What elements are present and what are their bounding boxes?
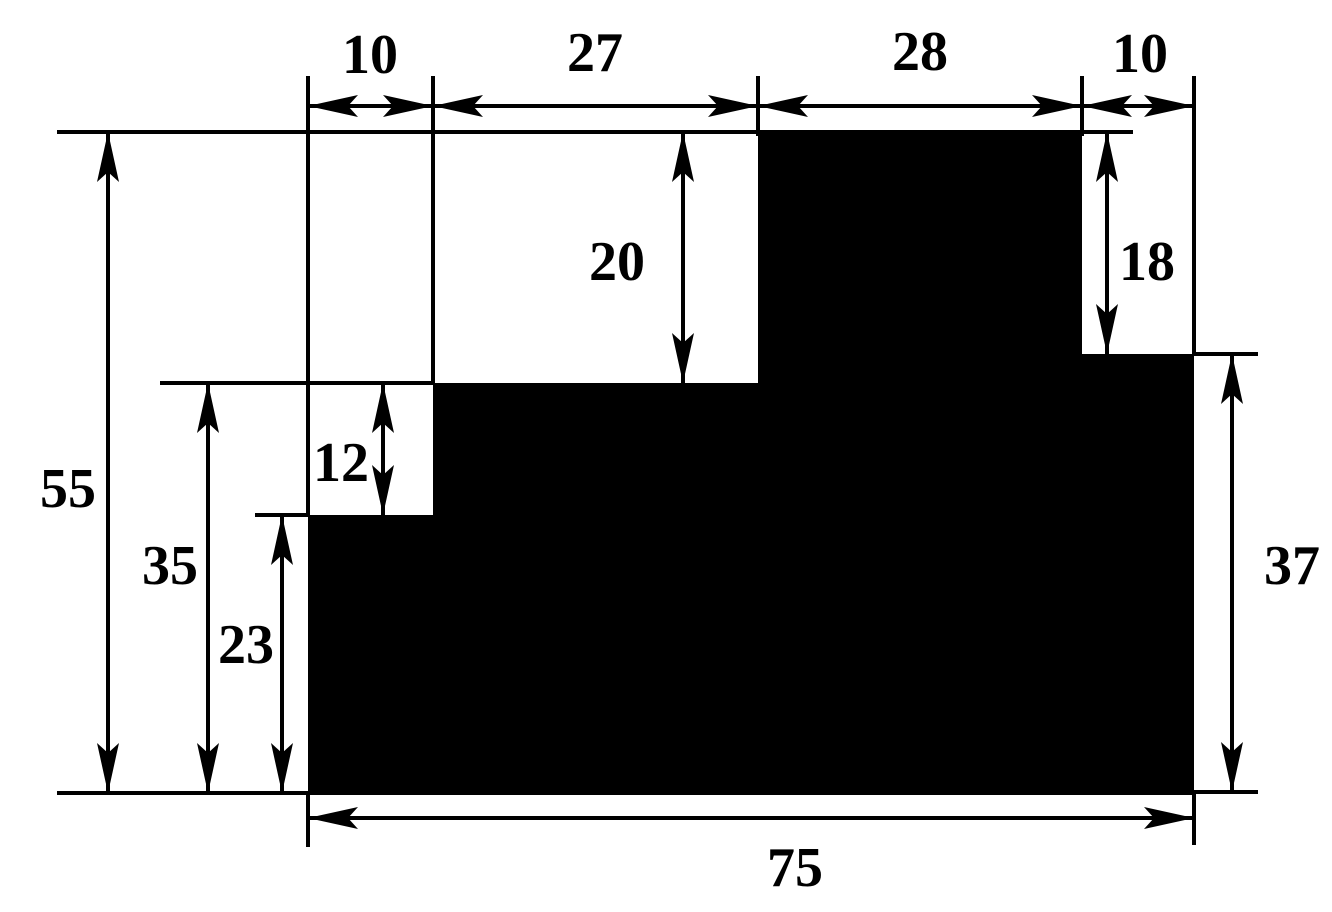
dim-top-10-left-label: 10 — [342, 24, 398, 86]
dim-top-28-label: 28 — [892, 21, 948, 83]
dim-12-label: 12 — [313, 432, 369, 494]
dim-20-label: 20 — [589, 231, 645, 293]
technical-drawing: 102728105535231220183775 — [0, 0, 1332, 912]
drawing-canvas: 102728105535231220183775 — [0, 0, 1332, 912]
dim-bottom-75-label: 75 — [767, 837, 823, 899]
dim-35-label: 35 — [142, 535, 198, 597]
dim-18-label: 18 — [1119, 231, 1175, 293]
dim-top-10-right-label: 10 — [1112, 23, 1168, 85]
dim-23-label: 23 — [218, 614, 274, 676]
dim-top-27-label: 27 — [567, 22, 623, 84]
dim-37-label: 37 — [1264, 535, 1320, 597]
dim-55-label: 55 — [40, 458, 96, 520]
stepped-block — [308, 132, 1194, 793]
